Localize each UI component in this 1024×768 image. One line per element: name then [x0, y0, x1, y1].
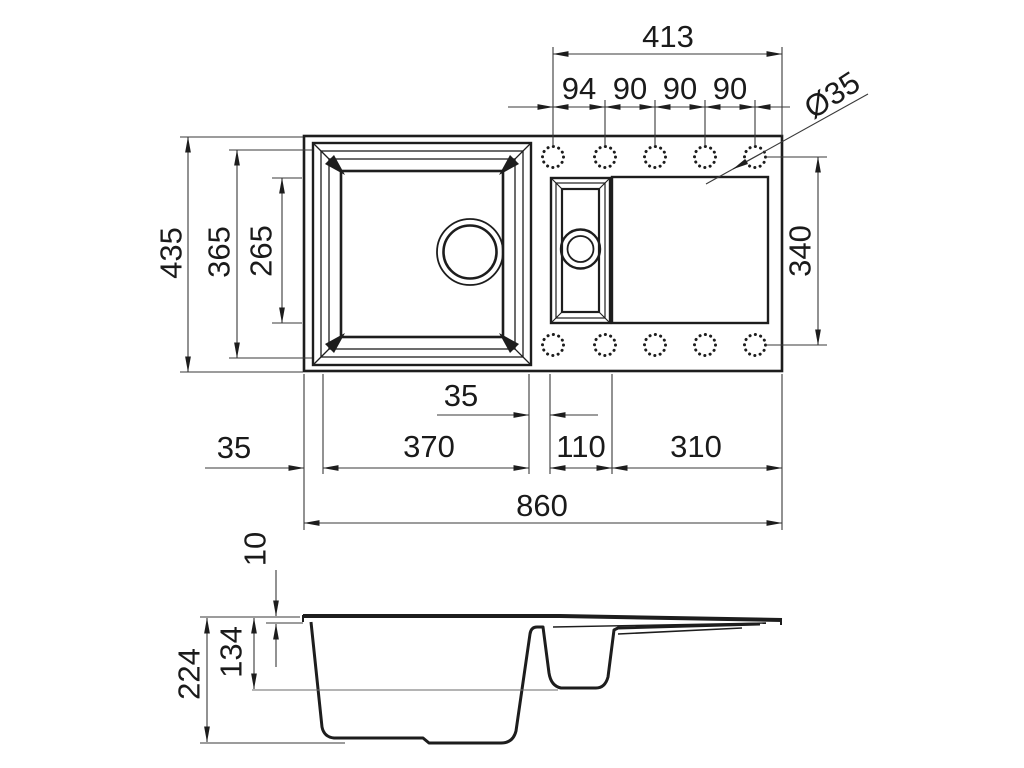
dim-label-94: 94	[562, 71, 596, 106]
half-bowl-rim-outer	[551, 178, 610, 323]
dim-label-134: 134	[214, 626, 249, 678]
half-bowl-mitre-lines	[551, 178, 610, 323]
dimension-drainer-length-310: 310	[612, 429, 782, 468]
dim-label-90c: 90	[713, 71, 747, 106]
dimension-bowl-gap-35: 35	[437, 378, 598, 415]
dim-label-gap-35: 35	[444, 378, 478, 413]
dim-label-340: 340	[783, 225, 818, 277]
half-drain-inner	[568, 236, 594, 262]
drainer-board	[612, 177, 768, 323]
faucet-hole	[695, 147, 716, 168]
dim-label-365: 365	[202, 226, 237, 278]
main-bowl-mitre-lines	[313, 143, 531, 365]
main-bowl-rim-line3	[329, 159, 515, 349]
dim-label-435: 435	[154, 227, 189, 279]
dimension-overall-length-860: 860	[304, 488, 782, 523]
section-bowl-profile	[311, 622, 760, 743]
section-top-surface	[303, 616, 782, 620]
dim-label-224: 224	[172, 648, 207, 700]
dimension-main-bowl-length-370: 370	[323, 429, 529, 468]
dim-label-90b: 90	[663, 71, 697, 106]
faucet-hole	[543, 147, 564, 168]
main-bowl-bottom	[341, 171, 503, 337]
technical-drawing-page: 413 94 90 90 90 Ø35 340 435	[0, 0, 1024, 768]
faucet-hole	[745, 335, 766, 356]
dim-label-hole-diameter: Ø35	[798, 64, 866, 125]
dimension-half-bowl-depth-134: 134	[200, 617, 300, 689]
top-view	[304, 136, 782, 371]
half-bowl	[551, 178, 610, 323]
dim-label-310: 310	[670, 429, 722, 464]
dimension-half-bowl-length-110: 110	[550, 429, 612, 468]
dim-label-10: 10	[238, 532, 273, 566]
faucet-hole	[595, 335, 616, 356]
dim-label-rim-35: 35	[217, 430, 251, 465]
main-bowl-rim-outer	[313, 143, 531, 365]
faucet-hole	[543, 335, 564, 356]
dim-label-413: 413	[642, 19, 694, 54]
dim-label-370: 370	[403, 429, 455, 464]
sink-technical-drawing: 413 94 90 90 90 Ø35 340 435	[0, 0, 1024, 768]
dim-label-265: 265	[244, 225, 279, 277]
section-view	[252, 615, 782, 743]
faucet-hole	[695, 335, 716, 356]
main-drain-outer	[437, 219, 503, 285]
dimension-drainer-depth-340: 340	[766, 157, 827, 345]
main-bowl-rim-line2	[321, 151, 523, 357]
dimension-left-rim-35: 35	[205, 430, 304, 468]
dimension-main-bowl-depth-224: 224	[172, 618, 346, 743]
half-bowl-rim-line2	[556, 183, 605, 318]
faucet-hole	[595, 147, 616, 168]
faucet-hole	[645, 335, 666, 356]
dim-label-90a: 90	[613, 71, 647, 106]
dim-label-110: 110	[556, 429, 605, 464]
dim-label-860: 860	[516, 488, 568, 523]
main-drain-inner	[444, 226, 497, 279]
main-bowl	[313, 143, 531, 365]
faucet-hole	[645, 147, 666, 168]
dimension-bowl-inner-depth-265: 265	[244, 178, 303, 323]
